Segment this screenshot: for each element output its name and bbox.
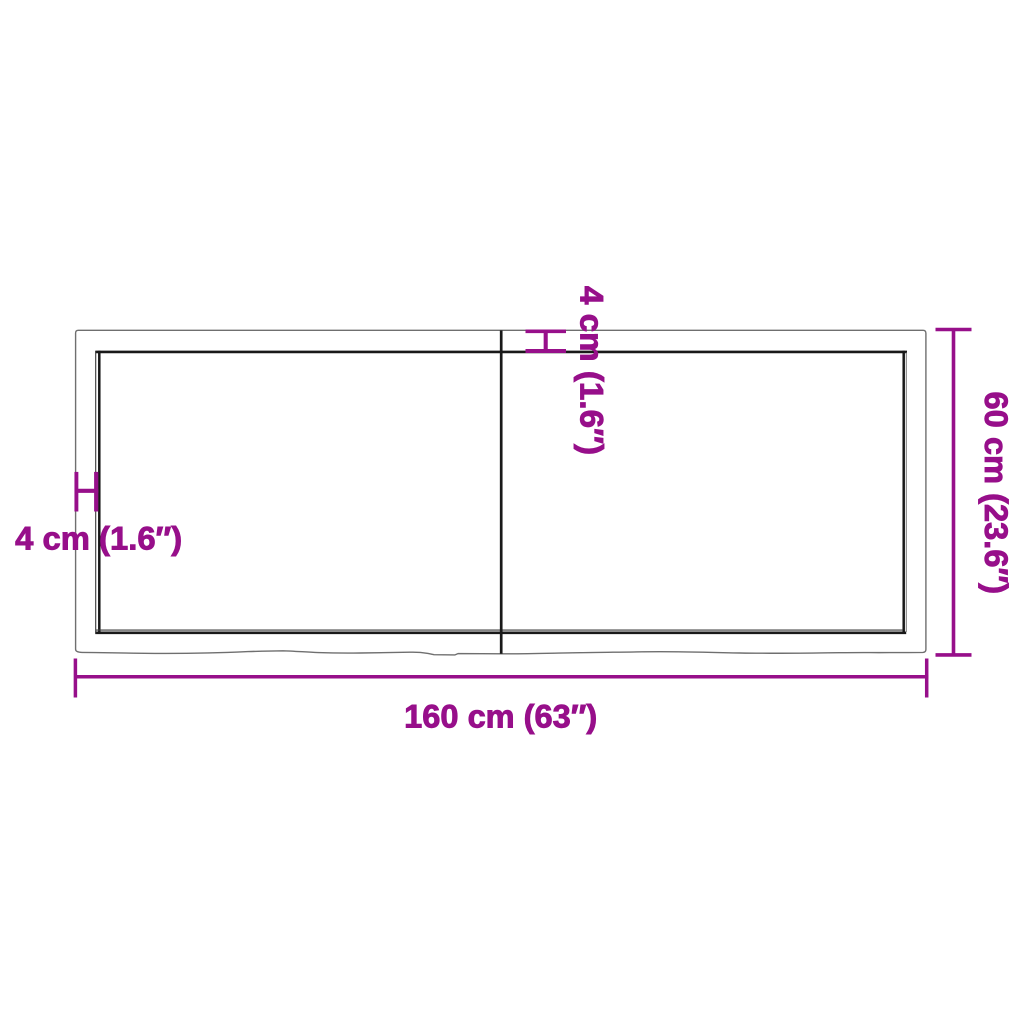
svg-text:60 cm (23.6″): 60 cm (23.6″) [978,392,1014,595]
svg-text:160 cm (63″): 160 cm (63″) [404,699,597,735]
svg-text:4 cm (1.6″): 4 cm (1.6″) [15,520,182,556]
svg-text:4 cm (1.6″): 4 cm (1.6″) [574,286,610,455]
